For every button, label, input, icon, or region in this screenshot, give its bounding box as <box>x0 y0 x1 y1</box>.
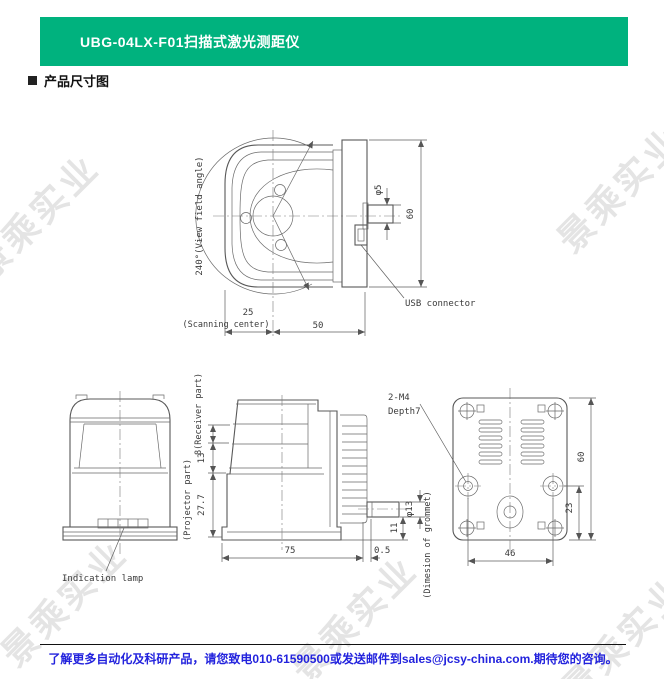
footer-contact: 了解更多自动化及科研产品，请您致电010-61590500或发送邮件到sales… <box>40 650 626 667</box>
product-title-bar: UBG-04LX-F01扫描式激光测距仪 <box>40 17 628 66</box>
dim-75: 75 <box>285 546 296 556</box>
dim-50: 50 <box>313 321 324 331</box>
dim-0-5: 0.5 <box>374 546 390 556</box>
dim-27-7: 27.7 <box>197 494 207 516</box>
indication-lamp-label: Indication lamp <box>62 574 143 584</box>
view-field-angle-label: 240°(View field angle) <box>195 156 205 275</box>
dim-13: 13 <box>197 453 207 464</box>
dim-60-top: 60 <box>406 209 416 220</box>
dim-60-rear: 60 <box>577 452 587 463</box>
projector-part-label: (Projector part) <box>183 459 193 541</box>
dimension-diagram: φ5 60 USB connector 25 (Scanning center)… <box>0 0 664 679</box>
footer-divider <box>40 644 626 645</box>
grommet-dimension-label: (Dimesion of grommet) <box>423 491 433 598</box>
front-view-drawing: Indication lamp <box>62 391 177 584</box>
thread-spec-label: 2-M4 <box>388 393 410 403</box>
thread-depth-label: Depth7 <box>388 407 421 417</box>
dim-11: 11 <box>390 523 400 534</box>
dim-phi13: φ13 <box>405 501 415 517</box>
page: 景乘实业 景乘实业 景乘实业 景乘实业 景乘实业 UBG-04LX-F01扫描式… <box>0 0 664 679</box>
usb-connector-label: USB connector <box>405 299 476 309</box>
rear-view-drawing: 60 23 46 <box>453 388 596 566</box>
top-view-drawing: φ5 60 USB connector 25 (Scanning center)… <box>183 130 477 338</box>
dim-phi5: φ5 <box>374 185 384 196</box>
bullet-square-icon <box>28 76 37 85</box>
receiver-part-label: 8(Receiver part) <box>194 373 204 455</box>
dim-46: 46 <box>505 549 516 559</box>
side-view-drawing: 8(Receiver part) 13 27.7 (Projector part… <box>183 373 466 599</box>
section-title: 产品尺寸图 <box>44 71 109 90</box>
scanning-center-label: (Scanning center) <box>183 320 270 330</box>
product-title: UBG-04LX-F01扫描式激光测距仪 <box>40 32 300 52</box>
dim-25: 25 <box>243 308 254 318</box>
section-heading: 产品尺寸图 <box>28 71 109 90</box>
dim-23: 23 <box>565 503 575 514</box>
